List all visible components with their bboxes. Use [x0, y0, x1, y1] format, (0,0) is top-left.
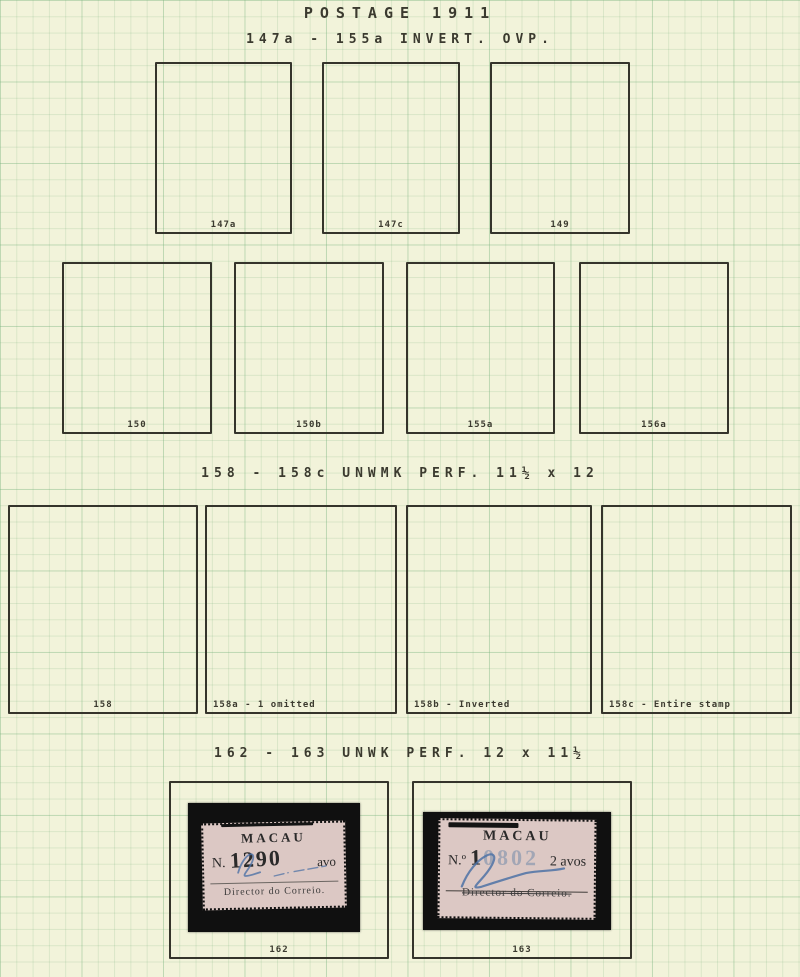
- box-label-155a: 155a: [408, 420, 553, 430]
- stamp-163: MACAU N.º 10802 2 avos Director do Corre…: [437, 818, 596, 920]
- stamp-162-smudge: [221, 822, 313, 827]
- page-title: POSTAGE 1911: [0, 4, 800, 22]
- stamp-mount-163: MACAU N.º 10802 2 avos Director do Corre…: [423, 812, 611, 930]
- stamp-163-smudge: [448, 822, 518, 828]
- box-label-158: 158: [10, 700, 196, 710]
- stamp-163-serial-light: 0802: [483, 845, 539, 871]
- stamp-frame-163: MACAU N.º 10802 2 avos Director do Corre…: [412, 781, 632, 959]
- stamp-box-155a: 155a: [406, 262, 555, 434]
- album-page: POSTAGE 1911 147a - 155a INVERT. OVP. 14…: [0, 0, 800, 977]
- stamp-162-rule: [210, 881, 338, 885]
- stamp-162-number-prefix: N.: [212, 856, 226, 871]
- stamp-box-158b: 158b - Inverted: [406, 505, 592, 714]
- stamp-box-156a: 156a: [579, 262, 729, 434]
- box-label-147c: 147c: [324, 220, 458, 230]
- stamp-box-158c: 158c - Entire stamp: [601, 505, 792, 714]
- box-label-147a: 147a: [157, 220, 290, 230]
- stamp-box-147a: 147a: [155, 62, 292, 234]
- stamp-mount-162: MACAU N. 1290 avo Director do Correio.: [188, 803, 360, 932]
- stamp-163-number-prefix: N.º: [448, 853, 466, 868]
- stamp-box-147c: 147c: [322, 62, 460, 234]
- box-label-149: 149: [492, 220, 628, 230]
- stamp-frame-162: MACAU N. 1290 avo Director do Correio. 1…: [169, 781, 389, 959]
- box-label-163: 163: [414, 945, 630, 955]
- stamp-163-country: MACAU: [440, 828, 594, 846]
- box-label-162: 162: [171, 945, 387, 955]
- box-label-150: 150: [64, 420, 210, 430]
- stamp-box-149: 149: [490, 62, 630, 234]
- stamp-box-158a: 158a - 1 omitted: [205, 505, 397, 714]
- stamp-163-denomination: 2 avos: [550, 850, 586, 874]
- page-subtitle: 147a - 155a INVERT. OVP.: [0, 32, 800, 47]
- box-label-156a: 156a: [581, 420, 727, 430]
- stamp-162-number-line: N. 1290 avo: [204, 846, 345, 877]
- stamp-162-serial: 1290: [229, 846, 282, 873]
- box-label-158b: 158b - Inverted: [408, 700, 590, 710]
- box-label-158c: 158c - Entire stamp: [603, 700, 790, 710]
- stamp-163-number-line: N.º 10802 2 avos: [440, 845, 594, 875]
- box-label-150b: 150b: [236, 420, 382, 430]
- stamp-163-serial: 1: [470, 845, 484, 869]
- stamp-box-158: 158: [8, 505, 198, 714]
- stamp-162-denomination: avo: [317, 850, 336, 874]
- box-label-158a: 158a - 1 omitted: [207, 700, 395, 710]
- stamp-box-150b: 150b: [234, 262, 384, 434]
- stamp-163-footer: Director do Correio.: [440, 886, 594, 900]
- stamp-box-150: 150: [62, 262, 212, 434]
- stamp-162: MACAU N. 1290 avo Director do Correio.: [201, 821, 347, 911]
- stamp-162-footer: Director do Correio.: [204, 885, 344, 899]
- section-header-unwmk: 158 - 158c UNWMK PERF. 11½ x 12: [0, 466, 800, 481]
- section-header-unwk: 162 - 163 UNWK PERF. 12 x 11½: [0, 746, 800, 761]
